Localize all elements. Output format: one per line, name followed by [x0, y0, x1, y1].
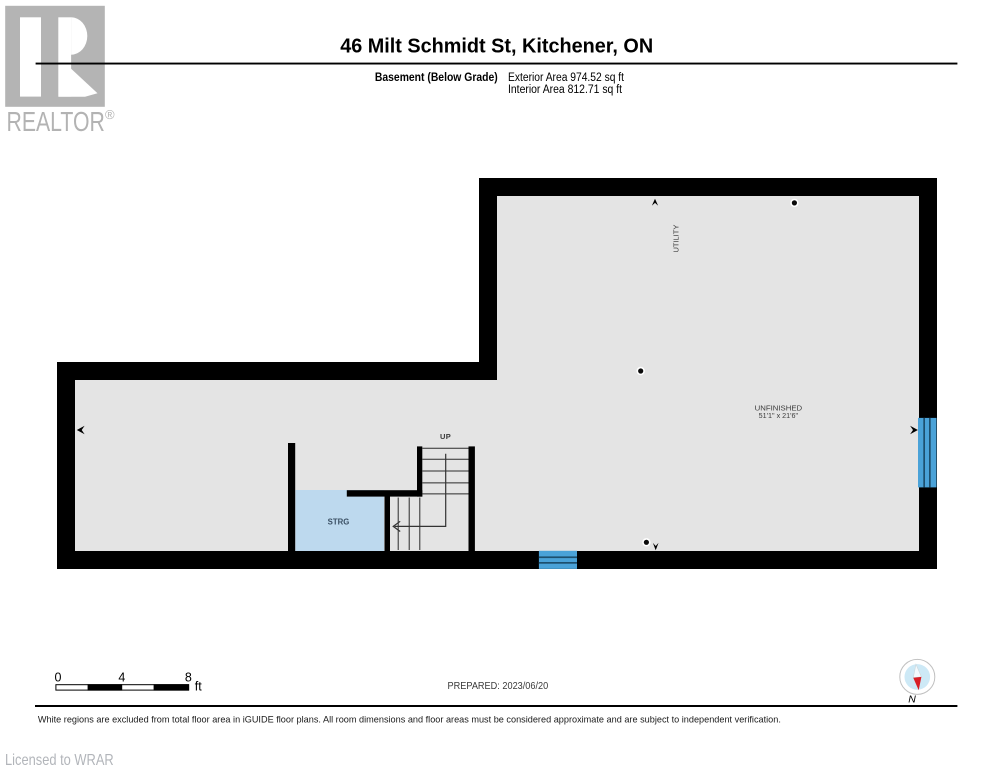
svg-text:Interior Area 812.71 sq ft: Interior Area 812.71 sq ft [508, 84, 623, 96]
svg-text:White regions are excluded fro: White regions are excluded from total fl… [38, 714, 781, 725]
svg-text:UP: UP [440, 432, 451, 441]
svg-text:8: 8 [185, 671, 192, 685]
svg-text:Licensed to WRAR: Licensed to WRAR [5, 752, 114, 768]
svg-text:ft: ft [195, 680, 202, 694]
svg-text:0: 0 [55, 671, 62, 685]
svg-text:4: 4 [118, 671, 125, 685]
svg-text:N: N [908, 694, 916, 706]
svg-text:UTILITY: UTILITY [673, 224, 680, 252]
svg-text:®: ® [105, 107, 115, 122]
svg-text:46 Milt Schmidt St, Kitchener,: 46 Milt Schmidt St, Kitchener, ON [340, 36, 653, 58]
svg-text:Exterior Area 974.52 sq ft: Exterior Area 974.52 sq ft [508, 72, 625, 84]
svg-text:PREPARED: 2023/06/20: PREPARED: 2023/06/20 [448, 680, 549, 692]
svg-text:STRG: STRG [328, 517, 350, 526]
svg-text:Basement (Below Grade): Basement (Below Grade) [375, 72, 498, 84]
svg-text:REALTOR: REALTOR [7, 106, 105, 137]
svg-text:UNFINISHED: UNFINISHED [755, 406, 803, 413]
svg-text:51'1" x 21'6": 51'1" x 21'6" [759, 413, 799, 420]
